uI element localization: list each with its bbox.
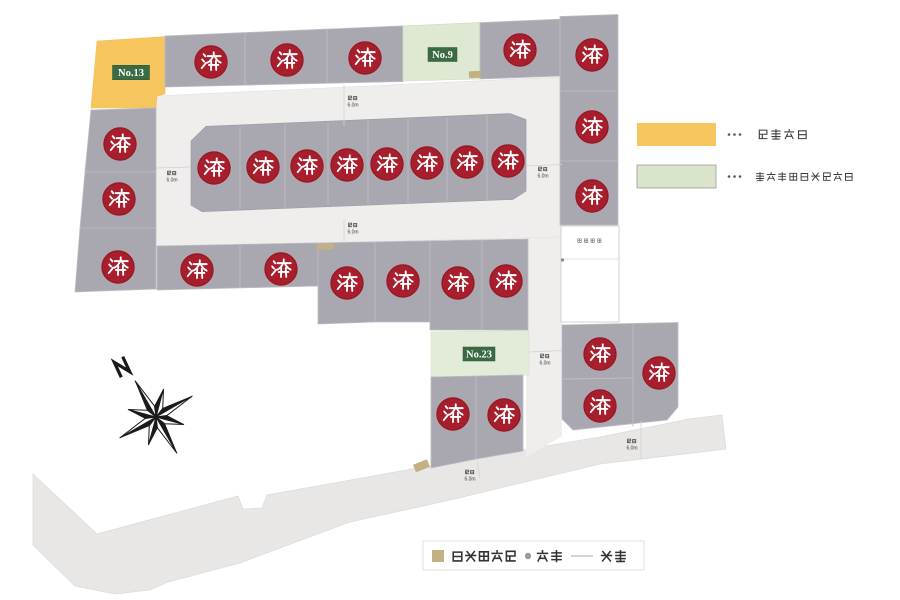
svg-text:No.23: No.23	[466, 350, 492, 361]
svg-text:6.0m: 6.0m	[166, 177, 177, 183]
svg-text:No.9: No.9	[432, 50, 453, 61]
svg-text:No.13: No.13	[118, 68, 144, 79]
svg-text:6.0m: 6.0m	[537, 173, 548, 179]
svg-text:6.0m: 6.0m	[464, 476, 475, 482]
svg-text:6.0m: 6.0m	[539, 360, 550, 366]
svg-text:6.0m: 6.0m	[347, 229, 358, 235]
svg-text:6.0m: 6.0m	[626, 445, 637, 451]
svg-text:6.0m: 6.0m	[347, 102, 358, 108]
